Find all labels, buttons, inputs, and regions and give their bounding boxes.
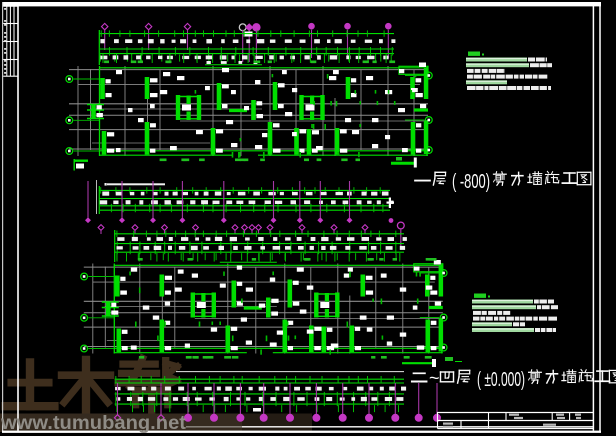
svg-text:www.tumubang.net: www.tumubang.net <box>0 413 187 434</box>
svg-text:~: ~ <box>429 368 440 388</box>
svg-text:( -800): ( -800) <box>452 171 490 193</box>
svg-text:( ±0.000): ( ±0.000) <box>477 369 525 391</box>
